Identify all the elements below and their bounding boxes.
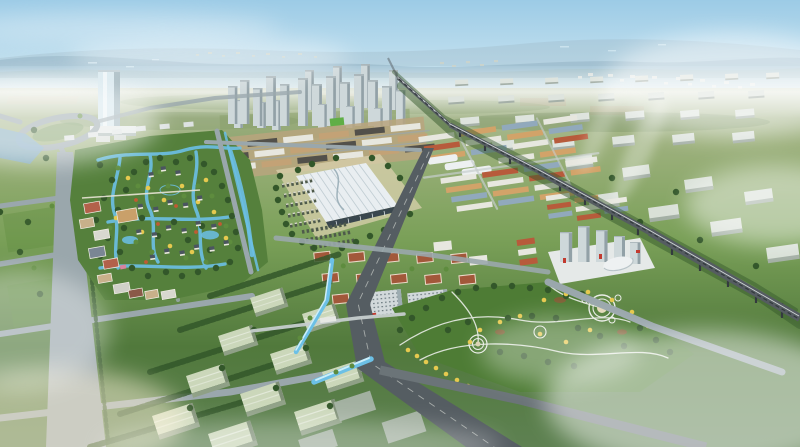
market-rows-west-of-towers: [516, 238, 537, 266]
scene-canvas: [0, 0, 800, 447]
aerial-masterplan-rendering: [0, 0, 800, 447]
